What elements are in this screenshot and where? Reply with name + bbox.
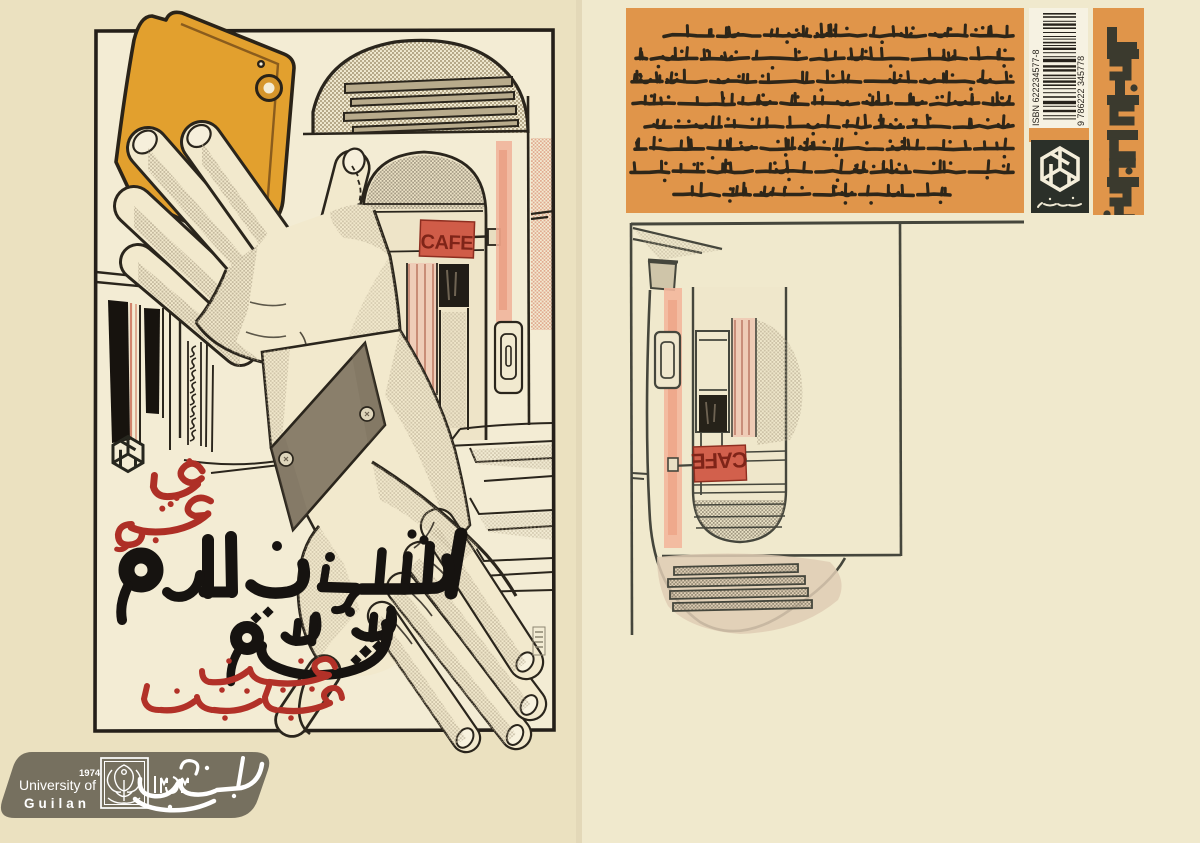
svg-text:ISBN 622234577-8: ISBN 622234577-8 [1031, 49, 1041, 126]
svg-text:CAFE: CAFE [420, 231, 473, 255]
svg-text:Guilan: Guilan [24, 796, 90, 811]
svg-text:University of: University of [19, 777, 96, 793]
svg-text:9 786222 345778: 9 786222 345778 [1076, 56, 1086, 126]
svg-text:CAFE: CAFE [691, 447, 748, 474]
